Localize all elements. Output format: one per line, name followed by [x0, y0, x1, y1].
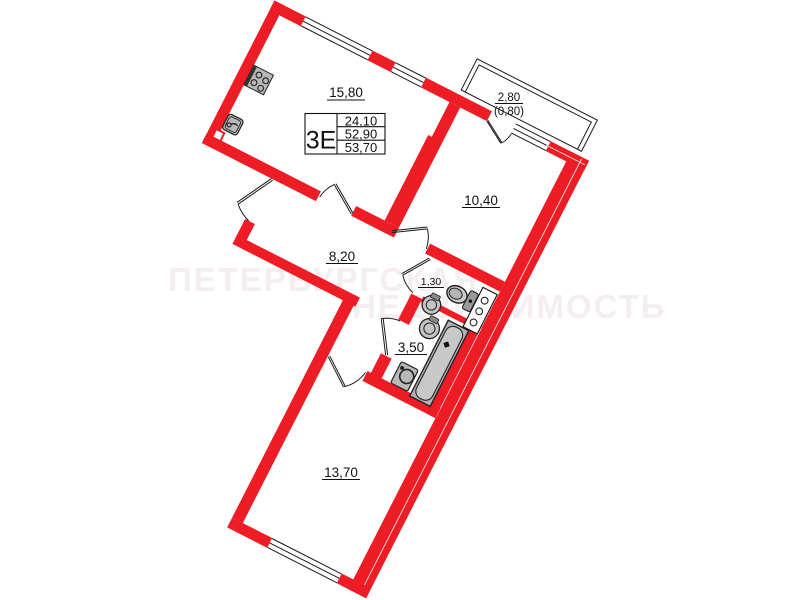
svg-text:8,20: 8,20: [329, 249, 355, 264]
svg-text:53,70: 53,70: [345, 140, 378, 155]
svg-text:13,70: 13,70: [324, 465, 358, 480]
svg-text:3,50: 3,50: [398, 340, 424, 355]
svg-text:10,40: 10,40: [464, 193, 498, 208]
svg-text:(0,80): (0,80): [494, 106, 524, 118]
svg-text:2,80: 2,80: [498, 92, 520, 104]
svg-text:15,80: 15,80: [329, 85, 363, 100]
svg-text:3Е: 3Е: [306, 127, 337, 155]
svg-text:1,30: 1,30: [421, 276, 442, 288]
